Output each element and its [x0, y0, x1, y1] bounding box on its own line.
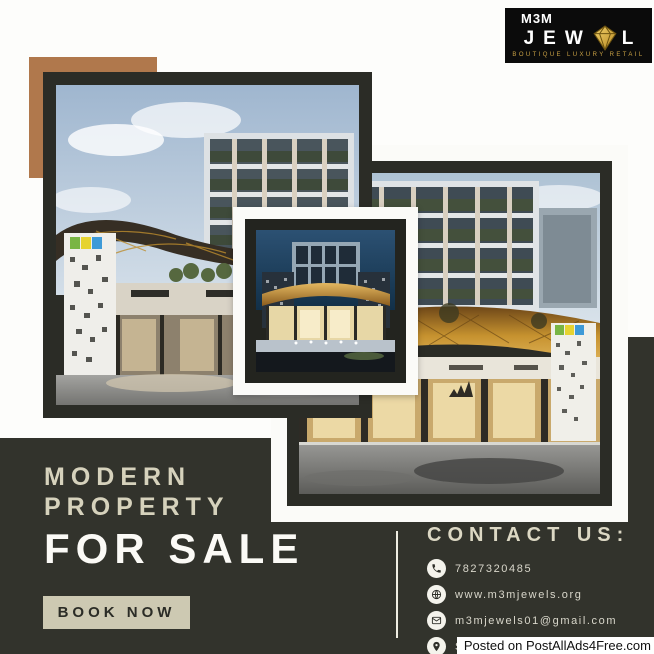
photo-frame-center — [233, 207, 418, 395]
brand-logo: M3M JEW L BOUTIQUE LUXURY RETAIL — [505, 8, 652, 63]
contact-heading: CONTACT US: — [427, 524, 652, 547]
contact-website: www.m3mjewels.org — [455, 589, 582, 601]
contact-row-email[interactable]: m3mjewels01@gmail.com — [427, 611, 652, 630]
phone-icon — [427, 559, 446, 578]
flyer-canvas: M3M JEW L BOUTIQUE LUXURY RETAIL MODERN … — [0, 0, 654, 654]
watermark-text: Posted on PostAllAds4Free.com — [464, 638, 651, 653]
contact-section: CONTACT US: 7827320485 www.m3mjewels.org… — [427, 524, 652, 654]
brand-logo-l: L — [622, 29, 634, 49]
brand-logo-m3m: M3M — [521, 12, 553, 25]
diamond-icon — [592, 25, 618, 51]
contact-phone-number: 7827320485 — [455, 563, 532, 575]
building-render-center-image — [256, 230, 395, 372]
headline-line-for-sale: FOR SALE — [44, 524, 304, 574]
watermark-strip: Posted on PostAllAds4Free.com — [457, 637, 654, 654]
globe-icon — [427, 585, 446, 604]
contact-row-website[interactable]: www.m3mjewels.org — [427, 585, 652, 604]
brand-logo-word: JEW L — [524, 25, 634, 49]
book-now-button[interactable]: BOOK NOW — [43, 596, 190, 629]
contact-email: m3mjewels01@gmail.com — [455, 615, 617, 627]
headline-line-modern: MODERN — [44, 462, 304, 492]
mail-icon — [427, 611, 446, 630]
vertical-divider — [396, 531, 398, 638]
photo-frame-center-border — [245, 219, 406, 383]
location-icon — [427, 637, 446, 654]
headline: MODERN PROPERTY FOR SALE — [44, 462, 304, 574]
brand-logo-jew: JEW — [524, 29, 592, 49]
headline-line-property: PROPERTY — [44, 492, 304, 522]
contact-row-phone[interactable]: 7827320485 — [427, 559, 652, 578]
brand-tagline: BOUTIQUE LUXURY RETAIL — [512, 52, 644, 58]
